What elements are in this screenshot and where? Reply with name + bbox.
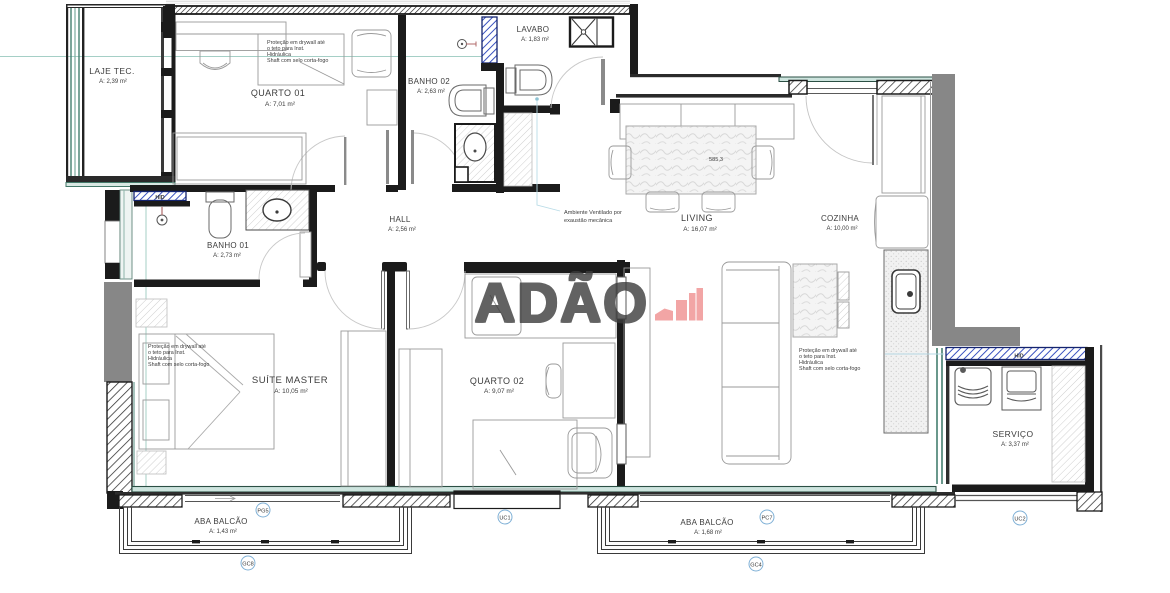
svg-text:SERVIÇO: SERVIÇO (993, 429, 1034, 439)
svg-text:A: 10,00 m²: A: 10,00 m² (826, 226, 857, 232)
svg-text:ADÃO: ADÃO (475, 271, 649, 334)
svg-text:HALL: HALL (389, 215, 410, 224)
svg-text:BANHO 01: BANHO 01 (207, 241, 249, 250)
svg-text:585,3: 585,3 (709, 157, 723, 163)
svg-text:A: 2,73 m²: A: 2,73 m² (213, 253, 241, 259)
svg-text:PC7: PC7 (762, 516, 773, 522)
svg-text:GC4: GC4 (750, 563, 762, 569)
svg-text:UC2: UC2 (1014, 517, 1025, 523)
svg-text:LAVABO: LAVABO (517, 25, 550, 34)
svg-text:COZINHA: COZINHA (821, 214, 859, 223)
svg-text:QUARTO 01: QUARTO 01 (251, 88, 305, 98)
svg-text:LAJE TEC.: LAJE TEC. (89, 66, 135, 76)
svg-text:A: 2,39 m²: A: 2,39 m² (99, 79, 127, 85)
svg-text:A: 2,56 m²: A: 2,56 m² (388, 227, 416, 233)
svg-text:UC1: UC1 (499, 516, 510, 522)
svg-text:ABA BALCÃO: ABA BALCÃO (194, 517, 247, 526)
svg-text:QUARTO 02: QUARTO 02 (470, 376, 524, 386)
svg-text:exaustão mecânica: exaustão mecânica (564, 218, 613, 224)
svg-text:A: 9,07 m²: A: 9,07 m² (484, 388, 515, 395)
svg-text:A: 3,37 m²: A: 3,37 m² (1001, 442, 1029, 448)
svg-text:A: 2,63 m²: A: 2,63 m² (417, 89, 445, 95)
svg-text:A: 1,83 m²: A: 1,83 m² (521, 37, 549, 43)
svg-text:SUÍTE MASTER: SUÍTE MASTER (252, 375, 328, 386)
svg-text:BANHO 02: BANHO 02 (408, 77, 450, 86)
svg-text:PG5: PG5 (257, 509, 268, 515)
svg-text:A: 16,07 m²: A: 16,07 m² (683, 226, 717, 233)
svg-text:LIVING: LIVING (681, 213, 713, 223)
svg-text:A: 7,01 m²: A: 7,01 m² (265, 101, 296, 108)
svg-text:A: 1,43 m²: A: 1,43 m² (209, 529, 237, 535)
svg-text:Ambiente Ventilado por: Ambiente Ventilado por (564, 210, 622, 216)
svg-text:Shaft com selo corta-fogo: Shaft com selo corta-fogo (799, 366, 860, 372)
svg-text:HID: HID (1014, 354, 1023, 360)
svg-text:HID: HID (155, 195, 164, 201)
svg-text:Shaft com selo corta-fogo: Shaft com selo corta-fogo (148, 362, 209, 368)
svg-text:GC8: GC8 (242, 562, 254, 568)
svg-text:A: 10,05 m²: A: 10,05 m² (274, 388, 308, 395)
svg-text:ABA BALCÃO: ABA BALCÃO (680, 518, 733, 527)
svg-text:A: 1,68 m²: A: 1,68 m² (694, 530, 722, 536)
svg-text:Shaft com selo corta-fogo: Shaft com selo corta-fogo (267, 58, 328, 64)
